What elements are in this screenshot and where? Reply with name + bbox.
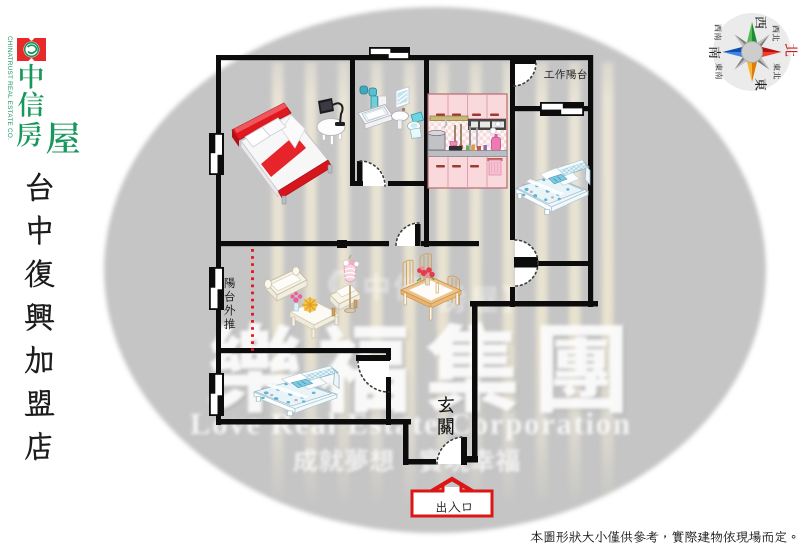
svg-text:CHINATRUST REAL ESTATE CO.: CHINATRUST REAL ESTATE CO. [6,36,13,140]
